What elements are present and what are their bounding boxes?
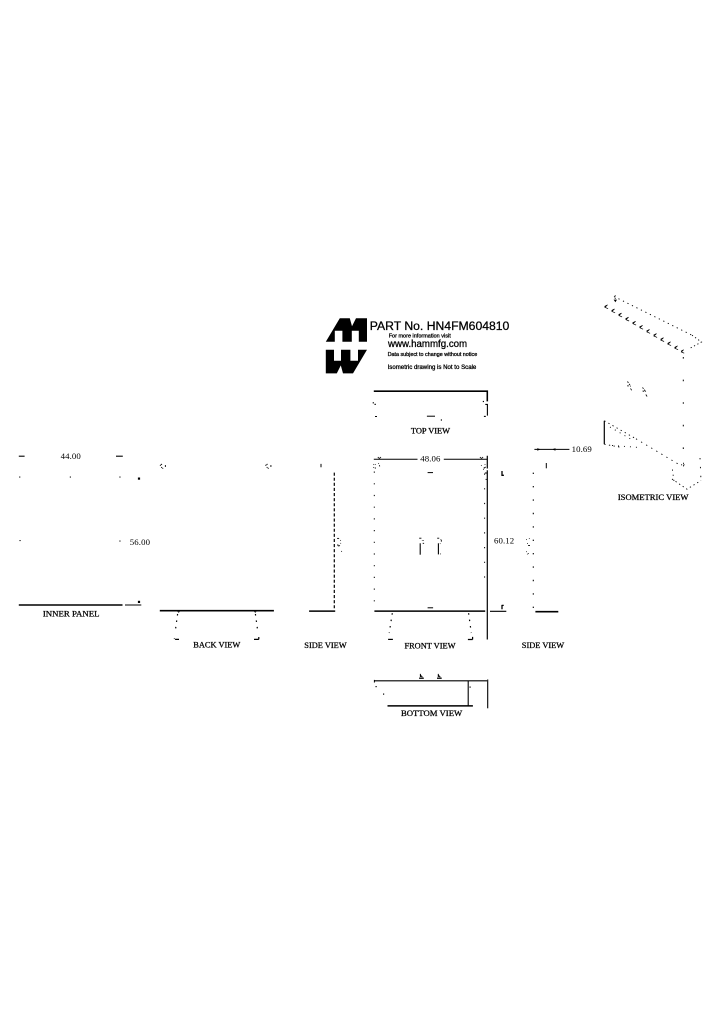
svg-text:60.12: 60.12 — [494, 536, 514, 546]
svg-text:BOTTOM VIEW: BOTTOM VIEW — [401, 708, 463, 718]
svg-text:FRONT VIEW: FRONT VIEW — [404, 641, 455, 650]
svg-text:SIDE VIEW: SIDE VIEW — [304, 641, 347, 650]
svg-text:www.hammfg.com: www.hammfg.com — [387, 339, 467, 350]
svg-text:48.06: 48.06 — [420, 454, 441, 464]
svg-text:INNER PANEL: INNER PANEL — [43, 608, 100, 618]
svg-text:BACK VIEW: BACK VIEW — [193, 641, 240, 650]
svg-text:PART No. HN4FM604810: PART No. HN4FM604810 — [370, 319, 510, 333]
svg-text:56.00: 56.00 — [130, 537, 151, 547]
svg-text:SIDE VIEW: SIDE VIEW — [522, 641, 565, 650]
svg-text:44.00: 44.00 — [61, 451, 82, 461]
svg-text:Isometric drawing is Not to Sc: Isometric drawing is Not to Scale — [388, 364, 477, 371]
svg-text:TOP VIEW: TOP VIEW — [411, 427, 450, 436]
svg-text:10.69: 10.69 — [572, 444, 593, 454]
svg-text:Data subject to change without: Data subject to change without notice — [388, 352, 478, 358]
svg-text:ISOMETRIC VIEW: ISOMETRIC VIEW — [618, 492, 690, 502]
